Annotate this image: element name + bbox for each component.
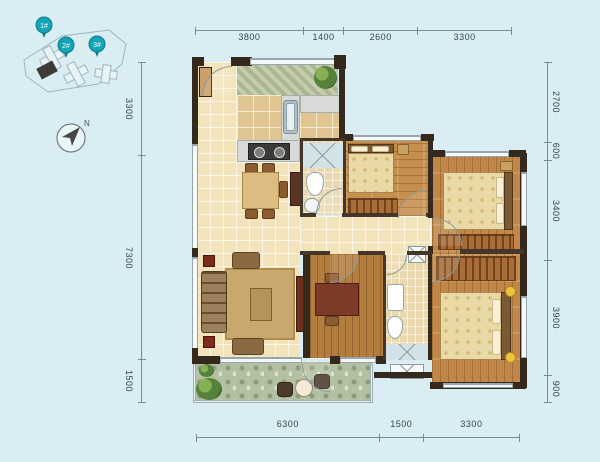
- living-south-window: [220, 357, 302, 363]
- bedside-lamp: [505, 352, 516, 363]
- pillow: [372, 146, 389, 152]
- pillow: [496, 177, 504, 198]
- dim-segment: 3300: [138, 62, 146, 155]
- balcony-rail: [193, 400, 373, 403]
- dim-segment: 1400: [303, 27, 343, 35]
- map-pin-1-label: 1#: [40, 23, 48, 30]
- wall: [334, 55, 346, 69]
- bedroom1-side-window: [521, 172, 527, 226]
- dim-value: 7300: [124, 247, 134, 269]
- dim-segment: 1500: [138, 359, 146, 403]
- dim-value: 3900: [551, 307, 561, 329]
- wall: [428, 136, 433, 218]
- dim-segment: 600: [544, 142, 552, 160]
- wall: [300, 140, 303, 216]
- dim-segment: 3300: [417, 27, 512, 35]
- bathroom2-shower-floor: [383, 344, 431, 360]
- dining-chair: [279, 181, 288, 198]
- map-pin-3: 3#: [89, 36, 105, 57]
- dim-segment: 7300: [138, 155, 146, 359]
- dim-segment: 3900: [544, 260, 552, 375]
- study-desk: [315, 283, 359, 316]
- master-side-window: [521, 296, 527, 358]
- coffee-table: [250, 288, 272, 321]
- dining-chair: [262, 209, 275, 219]
- map-pin-2-label: 2#: [62, 43, 70, 50]
- map-pin-3-label: 3#: [93, 42, 101, 49]
- balcony-chair: [277, 382, 293, 397]
- sink-basin: [286, 103, 295, 131]
- dim-value: 3400: [551, 200, 561, 222]
- dining-chair: [245, 209, 258, 219]
- kitchen-sink: [283, 100, 298, 134]
- nightstand: [397, 144, 409, 155]
- bedroom2-window: [353, 135, 421, 141]
- site-boundary: [24, 30, 126, 92]
- burner-icon: [274, 147, 285, 158]
- utility-window: [250, 58, 336, 65]
- balcony-plant: [199, 364, 214, 377]
- utility-plant: [314, 66, 337, 89]
- compass-north-label: N: [84, 119, 90, 128]
- wall: [383, 255, 386, 360]
- wall: [192, 248, 198, 257]
- kitchen-counter-top: [300, 95, 343, 113]
- balcony-rail: [193, 364, 196, 403]
- wall: [374, 372, 432, 378]
- burner-icon: [254, 147, 265, 158]
- wall: [231, 57, 252, 66]
- pillow: [492, 330, 501, 355]
- dim-value: 900: [551, 381, 561, 398]
- dim-segment: 1500: [379, 434, 423, 442]
- dim-value: 6300: [197, 419, 379, 429]
- dim-value: 600: [551, 143, 561, 160]
- wall: [192, 356, 220, 364]
- wall: [460, 249, 524, 254]
- map-pin-1: 1#: [36, 17, 52, 38]
- bedroom1-window: [445, 151, 509, 157]
- dim-value: 3800: [196, 32, 303, 42]
- compass: N: [48, 112, 98, 160]
- dim-segment: 3300: [423, 434, 520, 442]
- wall: [192, 64, 198, 146]
- study-window: [340, 357, 376, 363]
- master-headboard: [501, 292, 511, 360]
- dimension-top: 3800 1400 2600 3300: [195, 30, 512, 31]
- wall: [300, 213, 316, 217]
- dim-value: 3300: [418, 32, 511, 42]
- balcony-rail: [370, 364, 373, 403]
- dim-segment: 2600: [343, 27, 417, 35]
- dim-value: 1500: [380, 419, 423, 429]
- dim-value: 3300: [424, 419, 519, 429]
- dim-value: 3300: [124, 98, 134, 120]
- master-bottom-window: [443, 383, 513, 388]
- side-table: [203, 336, 215, 348]
- dim-segment: 2700: [544, 62, 552, 142]
- sofa: [201, 271, 227, 333]
- dimension-bottom: 6300 1500 3300: [196, 437, 520, 438]
- dim-value: 2700: [551, 91, 561, 113]
- dim-value: 2600: [344, 32, 417, 42]
- dim-segment: 900: [544, 375, 552, 403]
- armchair: [232, 338, 264, 355]
- side-table: [203, 255, 215, 267]
- study-chair: [325, 316, 339, 326]
- nightstand: [500, 161, 513, 171]
- wall: [330, 356, 340, 364]
- pillow: [492, 299, 501, 324]
- dim-segment: 3400: [544, 160, 552, 260]
- pillow: [351, 146, 368, 152]
- wall: [339, 68, 345, 140]
- wall: [303, 255, 310, 358]
- dimension-right: 2700 600 3400 3900 900: [547, 62, 548, 403]
- wall: [342, 213, 398, 217]
- dining-table: [242, 172, 279, 209]
- pillow: [496, 203, 504, 224]
- armchair: [232, 252, 260, 269]
- bathroom1-shower: [302, 143, 343, 168]
- dimension-left: 3300 7300 1500: [141, 62, 142, 403]
- balcony-plant: [196, 378, 222, 400]
- wall: [343, 140, 346, 216]
- dim-segment: 3800: [195, 27, 303, 35]
- bedroom2-bed: [348, 153, 394, 193]
- dining-window: [192, 144, 198, 250]
- dim-value: 1500: [124, 370, 134, 392]
- bedroom1-headboard: [504, 172, 513, 230]
- living-window: [192, 257, 198, 350]
- dim-value: 1400: [304, 32, 343, 42]
- bedside-lamp: [505, 286, 516, 297]
- stove: [248, 143, 290, 160]
- dim-segment: 6300: [196, 434, 379, 442]
- floorplan-page: { "site_map": { "pins": [ {"label": "1#"…: [0, 0, 600, 462]
- bathroom2-sink: [387, 284, 404, 311]
- building-footprint-3: [94, 64, 118, 85]
- wall: [300, 138, 345, 141]
- wall: [358, 251, 385, 255]
